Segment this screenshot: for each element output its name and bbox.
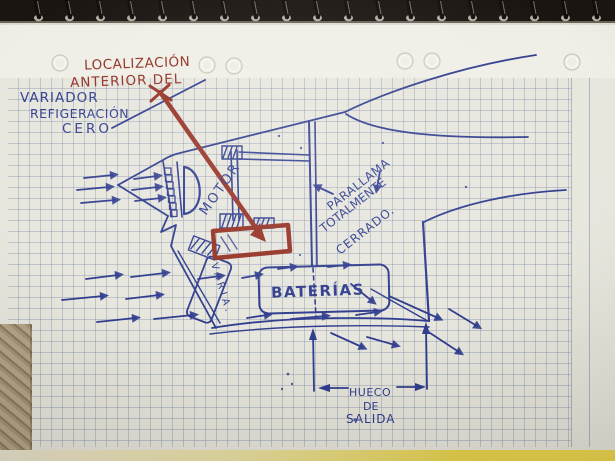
scribble-in-red-box: [221, 235, 237, 251]
label-localizacion-1: LOCALIZACIÓN: [84, 52, 191, 74]
arrowhead: [132, 314, 141, 323]
arrowhead: [114, 271, 123, 280]
arrowhead: [161, 269, 170, 278]
motor-mount: [220, 146, 309, 228]
intake-grille: [163, 161, 182, 217]
spiral-binding: [0, 0, 615, 25]
airflow-arrows: [62, 171, 482, 355]
arrowhead: [454, 347, 464, 356]
notebook-photo: LOCALIZACIÓN ANTERIOR DEL VARIADOR REFIG…: [0, 0, 615, 461]
arrowhead: [100, 292, 109, 301]
arrowhead: [112, 196, 121, 205]
arrowhead: [373, 308, 383, 317]
red-arrow: [160, 92, 266, 242]
arrowhead: [155, 291, 164, 300]
arrowhead: [153, 172, 163, 181]
arrowhead: [263, 311, 273, 320]
arrowhead: [110, 171, 119, 180]
arrowhead: [322, 312, 331, 321]
arrowhead: [391, 340, 401, 349]
arrowhead: [155, 183, 164, 192]
label-salida: SALIDA: [346, 412, 396, 426]
label-hueco: HUECO: [349, 386, 391, 399]
label-cero: CERO: [62, 121, 112, 137]
arrowhead: [106, 183, 115, 192]
label-motor: MOTOR: [196, 160, 244, 219]
label-refrigeracion: REFIGERACIÓN: [30, 106, 129, 121]
label-variador: VARIADOR: [20, 90, 99, 106]
labels: LOCALIZACIÓN ANTERIOR DEL VARIADOR REFIG…: [20, 52, 397, 426]
sketch-svg: LOCALIZACIÓN ANTERIOR DEL VARIADOR REFIG…: [0, 0, 615, 461]
exit-dimension: [309, 322, 430, 392]
arrowhead: [158, 194, 167, 203]
label-baterias: BATERÍAS: [271, 279, 366, 301]
